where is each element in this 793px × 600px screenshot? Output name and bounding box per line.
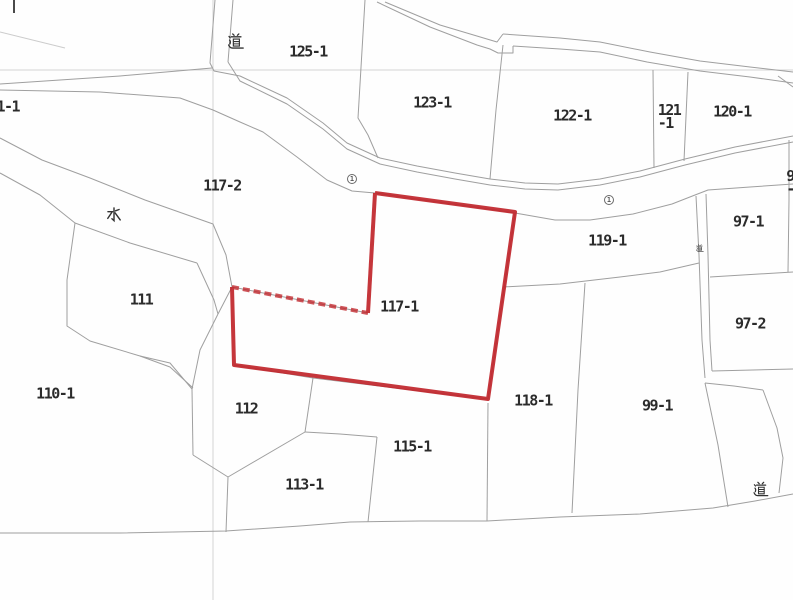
parcel-label-9-clipped: 9 - [786,170,793,196]
clipped-glyph-fragment [13,0,15,13]
parcel-label-117-1: 117-1 [380,301,418,314]
label-road-bottom-right [754,482,768,495]
label-road-top [229,34,244,48]
parcel-label-110-1: 110-1 [36,388,74,401]
parcel-label-99-1: 99-1 [642,400,672,413]
highlighted-parcel-117-1-outline [232,193,515,399]
parcel-label-125-1: 125-1 [289,46,327,59]
parcel-label-61-1: 61-1 [0,101,19,114]
label-water [108,208,120,221]
parcel-label-117-2: 117-2 [203,180,241,193]
parcel-label-120-1: 120-1 [713,106,751,119]
label-road-small [697,245,704,252]
cadastral-map-canvas[interactable]: 125-1 61-1 123-1 122-1 121 -1 120-1 117-… [0,0,793,600]
parcel-label-123-1: 123-1 [413,97,451,110]
parcel-label-118-1: 118-1 [514,395,552,408]
road-number-digit: 1 [350,176,354,183]
road-number-marker-1: 1 [347,174,357,184]
parcel-label-112: 112 [235,403,258,416]
parcel-label-122-1: 122-1 [553,110,591,123]
parcel-label-121-1: 121 -1 [658,104,681,130]
road-number-digit: 1 [607,197,611,204]
parcel-label-97-1: 97-1 [733,216,763,229]
parcel-label-111: 111 [130,294,153,307]
parcel-label-115-1: 115-1 [393,441,431,454]
road-number-marker-2: 1 [604,195,614,205]
parcel-label-113-1: 113-1 [285,479,323,492]
parcel-label-97-2: 97-2 [735,318,765,331]
parcel-label-119-1: 119-1 [588,235,626,248]
